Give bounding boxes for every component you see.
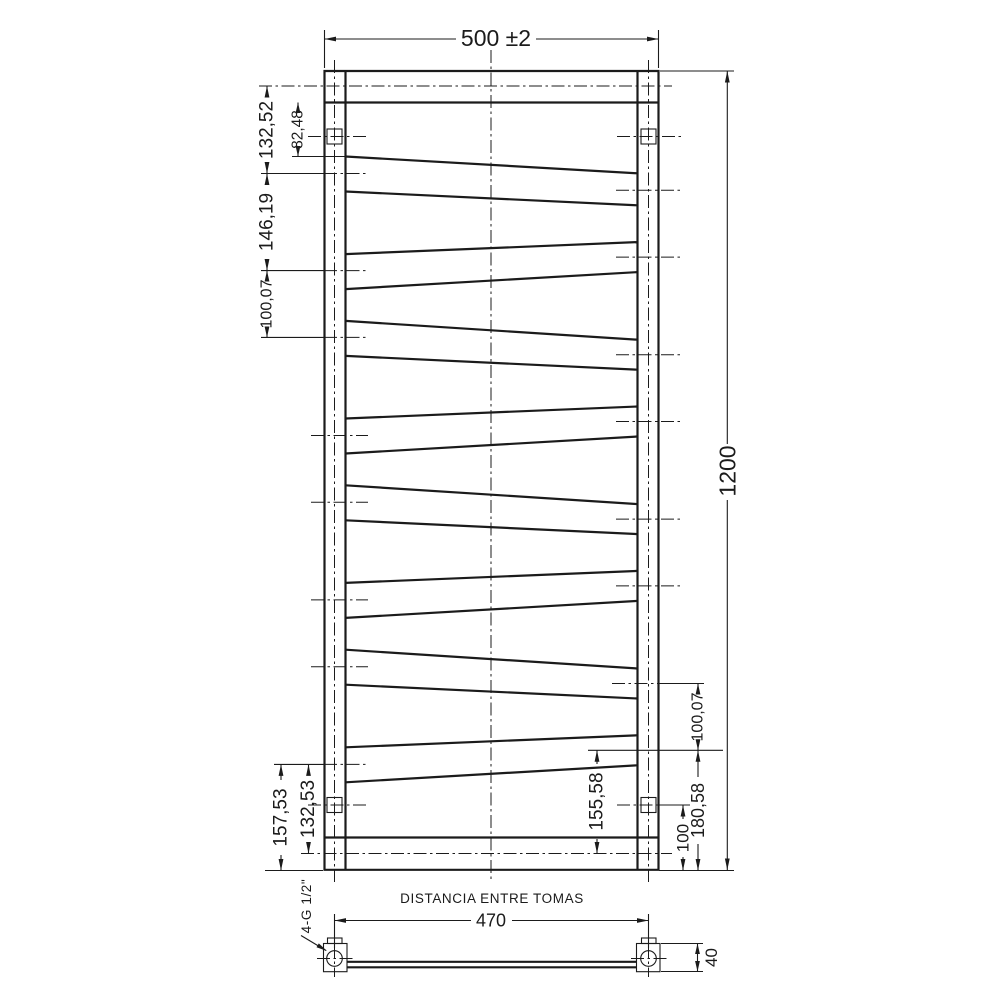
dim-157-53-label: 157,53	[271, 788, 292, 846]
plan-thread-label: 4-G 1/2"	[299, 879, 314, 934]
radiator-drawing: 500 ±2 1200 132,52 82,48 146,19 100,07	[0, 0, 1000, 1000]
plan-title: DISTANCIA ENTRE TOMAS	[400, 891, 584, 906]
plan-depth-label: 40	[702, 948, 721, 967]
extension-lines	[261, 30, 734, 871]
dim-bottom-right: 155,58 100,07 180,58 100	[587, 684, 709, 871]
dim-132-52-label: 132,52	[257, 101, 278, 159]
dim-height-label: 1200	[714, 445, 740, 496]
dim-bottom-left: 157,53 132,53	[271, 764, 320, 870]
dim-82-48-label: 82,48	[290, 110, 307, 149]
dim-155-58-label: 155,58	[587, 772, 608, 830]
dim-width-label: 500 ±2	[461, 25, 531, 51]
plan-span-label: 470	[476, 911, 506, 931]
center-lines	[259, 50, 672, 882]
wall-brackets	[308, 129, 681, 813]
plan-view: DISTANCIA ENTRE TOMAS 470 40	[299, 879, 721, 977]
dim-132-53-label: 132,53	[298, 780, 319, 838]
dim-100-07-right-label: 100,07	[690, 692, 707, 741]
connection-ticks	[311, 174, 681, 765]
dim-100-07-left-label: 100,07	[259, 279, 276, 328]
dim-left-chain: 132,52 82,48 146,19 100,07	[257, 86, 307, 337]
dim-146-19-label: 146,19	[257, 193, 278, 251]
dim-width: 500 ±2	[325, 25, 659, 51]
dim-100-label: 100	[674, 824, 693, 852]
technical-drawing-canvas: 500 ±2 1200 132,52 82,48 146,19 100,07	[0, 0, 1000, 1000]
